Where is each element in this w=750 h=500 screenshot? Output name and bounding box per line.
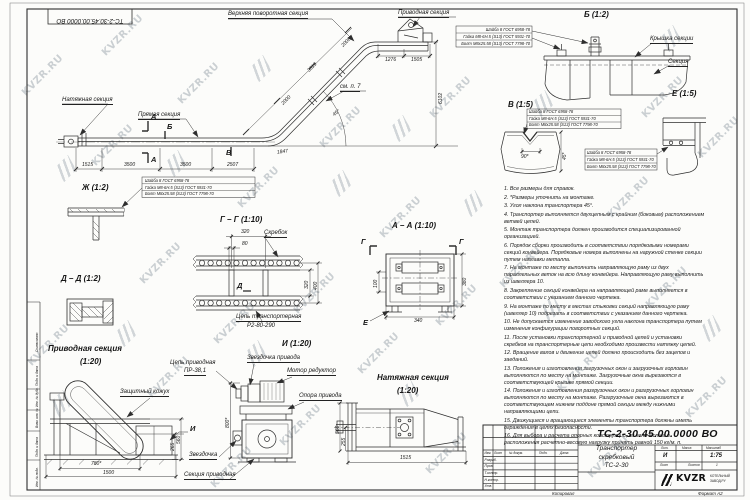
- dim-255-tension: 255: [342, 438, 347, 446]
- fastener-note-line: Болт М8х25.58 (S13) ГОСТ 7798-70: [458, 42, 530, 46]
- tb-header-sign: Подп.: [539, 452, 547, 455]
- section-mark-g-right: Г: [459, 238, 464, 246]
- fastener-note-line: Болт М8х25.58 (S13) ГОСТ 7798-70: [145, 192, 214, 196]
- dim-100: 100: [374, 280, 379, 288]
- tb-header-izm: Изм.: [485, 452, 492, 455]
- note-item: 6. Порядок сборки производить в соответс…: [504, 243, 705, 264]
- product-name-line1: Транспортер: [578, 446, 655, 453]
- dim-800: 800*: [226, 418, 231, 428]
- section-mark-b: Б: [167, 123, 172, 131]
- kvzr-company-line2: ЗАВОД.РУ: [710, 480, 726, 483]
- label-drive-chain-type: ПР-38,1: [184, 368, 206, 376]
- note-item: 1. Все размеры для справок.: [504, 186, 705, 193]
- note-item: 8. Закрепление секций конвейера на напра…: [504, 288, 705, 302]
- dim-560-drive: 560: [177, 436, 182, 444]
- dim-1505: 1505: [411, 58, 422, 63]
- format-label: Формат А2: [698, 492, 723, 497]
- label-motor-reducer: Мотор редуктор: [287, 368, 336, 376]
- detail-dd-title: Д – Д (1:2): [61, 275, 101, 283]
- label-drive-support: Опора привода: [299, 393, 342, 401]
- note-item: 11. После установки транспортерной и при…: [504, 335, 705, 349]
- label-drive-chain: Цепь приводная: [170, 360, 215, 366]
- frame-label-approved: Согласовано: [36, 333, 39, 352]
- fastener-note-line: Гайка М8-6Н.5 (S13) ГОСТ 5931-70: [458, 35, 530, 39]
- label-straight-section: Прямая секция: [138, 112, 180, 120]
- dim-560-tension: 560: [336, 426, 341, 434]
- dim-6102: 6102: [439, 93, 444, 104]
- tb-row-nkontr: Н.контр.: [485, 479, 499, 482]
- fastener-note-line: Шайба 8 ГОСТ 6958-78: [458, 28, 530, 32]
- view-i-title: И (1:20): [282, 340, 311, 348]
- note-item: 9. На монтаже по месту в местах стыковки…: [504, 304, 705, 318]
- dim-380: 380: [463, 278, 468, 286]
- note-item: 4. Транспортер выполняется двухцепным с …: [504, 212, 705, 226]
- fastener-note-line: Шайба 8 ГОСТ 6958-78: [145, 179, 189, 183]
- tb-row-razrab: Разраб.: [485, 459, 497, 462]
- label-tension-section: Натяжная секция: [62, 97, 113, 105]
- detail-e-title: Е (1:5): [672, 90, 696, 98]
- dim-1500: 1500: [103, 471, 114, 476]
- fastener-note-line: Шайба 8 ГОСТ 6958-78: [587, 151, 631, 155]
- detail-mark-e: Е: [363, 319, 368, 327]
- frame-label-inv-orig: Инв. № подл.: [36, 467, 39, 487]
- dim-1276: 1276: [385, 58, 396, 63]
- label-drive-sprocket: Звездочка привода: [247, 355, 300, 363]
- dim-400-right: 400: [314, 282, 319, 290]
- label-conveyor-chain: Цепь транспортерная: [236, 314, 301, 322]
- tb-header-sheets: Листов: [688, 464, 700, 467]
- label-drive-section-caption: Секция приводная: [184, 472, 236, 480]
- view-mark-i: И: [190, 425, 195, 433]
- dim-90: 90*: [521, 155, 529, 160]
- kvzr-logo-text: KVZR: [676, 473, 706, 484]
- section-mark-a-top: А: [151, 113, 156, 121]
- tb-header-sheet: Лист: [660, 464, 668, 467]
- technical-notes: 1. Все размеры для справок. 2. *Размеры …: [504, 186, 705, 449]
- section-mark-v: В: [226, 149, 231, 157]
- dim-1515-tension: 1515: [400, 456, 411, 461]
- fastener-note-line: Гайка М8-6Н.5 (S13) ГОСТ 5931-70: [529, 117, 596, 121]
- section-mark-a-bottom: А: [151, 156, 156, 164]
- tb-row-tkontr: Т.контр.: [485, 472, 499, 475]
- main-view-lines: [56, 17, 458, 172]
- tb-row-prov: Пров.: [485, 465, 494, 468]
- title-block-doc-number: ТС-2-30.45.00.0000 ВО: [580, 428, 735, 440]
- kvzr-company-line1: КОТЕЛЬНЫЙ: [710, 475, 730, 478]
- fastener-note-line: Гайка М8-6Н.5 (S13) ГОСТ 5931-70: [587, 158, 654, 162]
- label-section-cover: Крышка секции: [650, 36, 693, 44]
- tb-header-lit: Лит.: [661, 447, 668, 450]
- label-scraper: Скребок: [264, 230, 287, 238]
- frame-label-inv-dup: Инв. № дубл.: [36, 387, 39, 407]
- note-item: 12. Вращение валов и движение цепей долж…: [504, 350, 705, 364]
- copied-label: Копировал: [552, 492, 574, 497]
- tb-sheets-value: 1: [716, 464, 718, 467]
- fastener-note-line: Болт М8х25.58 (S13) ГОСТ 7798-70: [587, 165, 656, 169]
- note-item: 3. Угол наклона транспортера 45°.: [504, 203, 705, 210]
- tb-header-scale: Масштаб: [706, 447, 721, 450]
- detail-zh-title: Ж (1:2): [82, 184, 109, 192]
- label-sprocket: Звездочка: [189, 452, 217, 460]
- section-aa-title: А – А (1:10): [392, 222, 436, 230]
- dim-80: 80: [242, 242, 248, 247]
- dim-3500-b: 3500: [180, 163, 191, 168]
- label-conveyor-chain-type: Р2-80-290: [247, 323, 275, 329]
- fastener-note-line: Болт М8х25.58 (S13) ГОСТ 7798-70: [529, 123, 598, 127]
- product-name-line3: ТС-2-30: [578, 463, 655, 470]
- dim-3500-a: 3500: [124, 163, 135, 168]
- label-protective-casing: Защитный кожух: [120, 389, 169, 397]
- label-drive-section-top: Приводная секция: [398, 10, 449, 18]
- tension-view-scale: (1:20): [397, 387, 418, 395]
- frame-label-inv-repl: Взам. инв. №: [36, 408, 39, 428]
- corner-doc-number-stamp: ТС-2-30.45.00.0000 ВО: [48, 9, 132, 24]
- label-see-note-7: см. п. 7: [340, 84, 360, 92]
- tb-header-doc: № докум.: [509, 452, 523, 455]
- detail-v-title: В (1:5): [508, 101, 533, 109]
- fastener-note-line: Гайка М8-6Н.5 (S13) ГОСТ 5931-70: [145, 186, 212, 190]
- product-name-line2: скребковый: [578, 455, 655, 462]
- dim-780: 780*: [91, 462, 101, 467]
- section-mark-d: Д: [237, 282, 242, 290]
- dim-265-drive: 265: [171, 443, 176, 451]
- section-gg-title: Г – Г (1:10): [220, 216, 262, 224]
- drawing-sheet: KVZR.RU KVZR.RU KVZR.RU KVZR.RU KVZR.RU …: [0, 0, 750, 500]
- dim-320-right: 320: [305, 281, 310, 289]
- tb-scale-value: 1:75: [710, 453, 722, 459]
- label-upper-turn-section: Верхняя поворотная секция: [228, 11, 308, 19]
- note-item: 13. Положения и изготовления загрузочных…: [504, 366, 705, 387]
- drive-view-title: Приводная секция: [48, 345, 122, 353]
- dim-320-top: 320: [241, 230, 249, 235]
- tb-liter-value: И: [663, 453, 667, 459]
- tb-header-mass: Масса: [682, 447, 691, 450]
- dim-45: 45*: [563, 152, 568, 160]
- frame-label-sign-date: Подп. и дата: [36, 437, 39, 457]
- tb-header-list: Лист: [494, 452, 502, 455]
- section-aa-lines: [370, 246, 466, 321]
- dim-1515: 1515: [82, 163, 93, 168]
- detail-dd-lines: [67, 299, 113, 325]
- tb-header-date: Дата: [560, 452, 568, 455]
- dim-2507: 2507: [227, 163, 238, 168]
- tb-row-utv: Утв.: [485, 485, 493, 488]
- note-item: 14. Положения и изготовления разгрузочны…: [504, 388, 705, 416]
- note-item: 5. Монтаж транспортера должен производит…: [504, 227, 705, 241]
- detail-b-title: Б (1:2): [584, 11, 609, 19]
- dim-340: 340: [414, 319, 422, 324]
- note-item: 10. Не допускается изменение заводского …: [504, 319, 705, 333]
- section-mark-g-left: Г: [361, 238, 366, 246]
- note-item: 7. На монтаже по месту выполнить направл…: [504, 265, 705, 286]
- drive-view-scale: (1:20): [80, 358, 101, 366]
- frame-label-sign-date2: Подп. и дата: [36, 366, 39, 386]
- section-gg-lines: [193, 234, 322, 321]
- tension-view-title: Натяжная секция: [377, 374, 449, 382]
- label-section: Секция: [668, 59, 688, 67]
- note-item: 2. *Размеры уточнить на монтаже.: [504, 195, 705, 202]
- fastener-note-line: Шайба 8 ГОСТ 6958-78: [529, 110, 573, 114]
